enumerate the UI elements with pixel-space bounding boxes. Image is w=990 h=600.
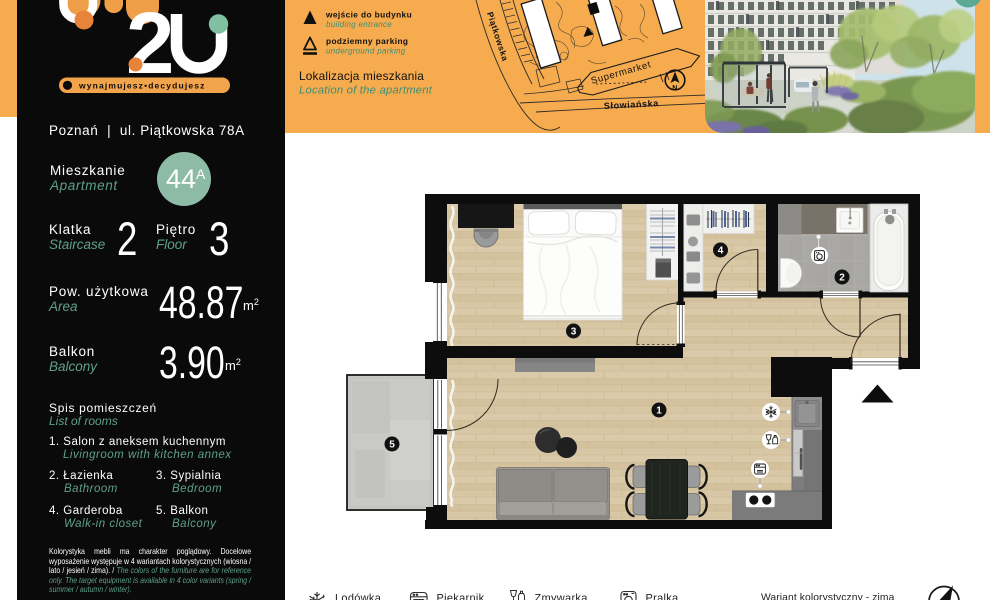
- svg-text:Location of the apartment: Location of the apartment: [299, 85, 433, 97]
- svg-text:4: 4: [718, 246, 724, 257]
- svg-text:Lodówka: Lodówka: [335, 593, 382, 600]
- svg-text:Pralka: Pralka: [646, 593, 680, 600]
- svg-text:Lokalizacja mieszkania: Lokalizacja mieszkania: [299, 69, 424, 83]
- svg-text:2: 2: [839, 273, 845, 284]
- svg-text:podziemny parking: podziemny parking: [326, 36, 408, 46]
- svg-text:5: 5: [389, 440, 395, 451]
- svg-text:Piątkowska: Piątkowska: [485, 11, 510, 63]
- svg-text:wejście do budynku: wejście do budynku: [325, 10, 412, 20]
- svg-text:Słowiańska: Słowiańska: [604, 98, 660, 111]
- svg-text:1: 1: [656, 406, 662, 417]
- svg-text:Wariant kolorystyczny - zima: Wariant kolorystyczny - zima: [761, 593, 895, 600]
- svg-text:underground parking: underground parking: [326, 47, 406, 56]
- svg-text:3: 3: [571, 327, 577, 338]
- svg-text:N: N: [672, 85, 677, 92]
- svg-text:Piekarnik: Piekarnik: [437, 593, 485, 600]
- svg-text:Zmywarka: Zmywarka: [535, 593, 589, 600]
- svg-text:building entrance: building entrance: [326, 20, 392, 29]
